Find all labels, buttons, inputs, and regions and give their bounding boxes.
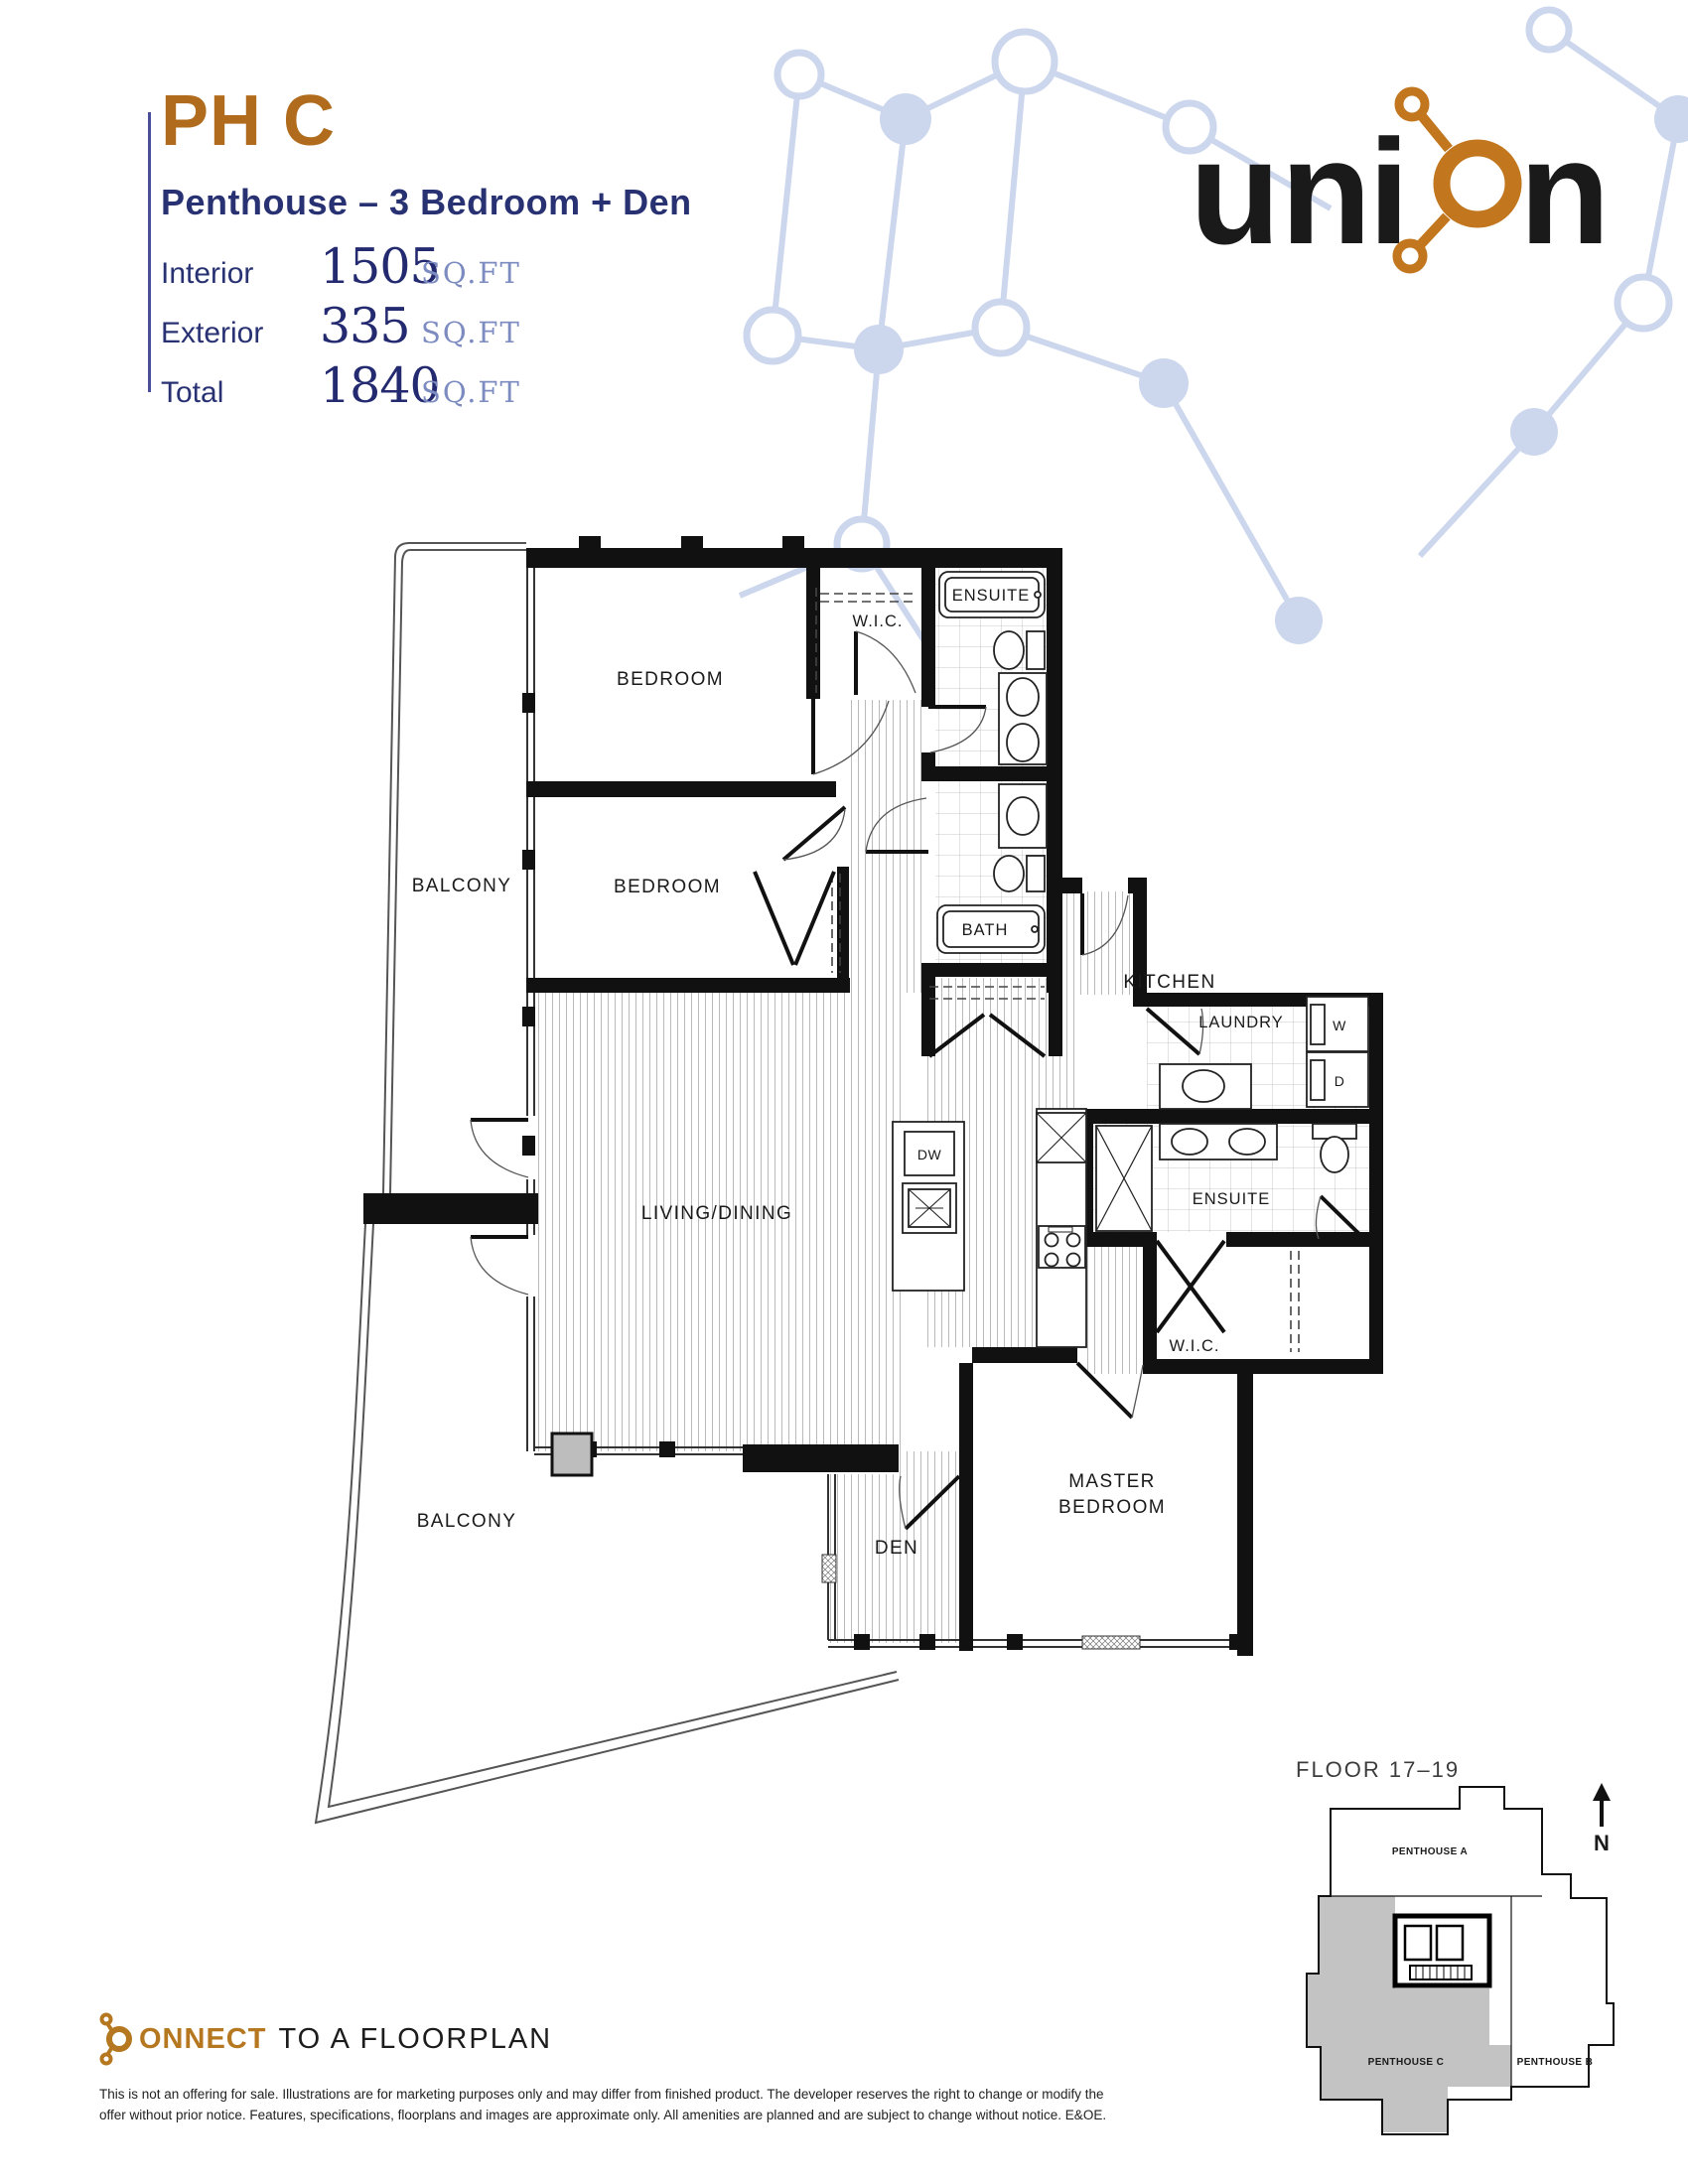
window-sill: [822, 1555, 836, 1582]
floorplan: BEDROOM BEDROOM W.I.C. ENSUITE BATH BALC…: [298, 526, 1390, 1846]
toilet: [1027, 631, 1045, 669]
room-label-living-dining: LIVING/DINING: [641, 1203, 792, 1224]
area-label: Interior: [161, 257, 320, 291]
room-label-ensuite-1: ENSUITE: [952, 587, 1031, 605]
room-label-bedroom-2: BEDROOM: [614, 877, 721, 897]
connect-molecule-icon: [99, 2011, 135, 2067]
toilet: [1027, 856, 1045, 891]
logo-text-un: un: [1190, 108, 1371, 275]
connect-logo-row: ONNECT TO A FLOORPLAN: [99, 2011, 552, 2067]
union-logo: un i n: [1172, 84, 1609, 283]
room-label-laundry: LAUNDRY: [1198, 1014, 1284, 1031]
area-row-total: Total 1840 SQ.FT: [161, 357, 521, 415]
room-label-balcony-2: BALCONY: [417, 1511, 517, 1532]
room-label-kitchen: KITCHEN: [1123, 972, 1215, 993]
logo-text-n: n: [1519, 108, 1609, 275]
keyplan-label-penthouse-b: PENTHOUSE B: [1517, 2057, 1594, 2068]
area-label: Total: [161, 376, 320, 410]
area-unit: SQ.FT: [421, 256, 521, 290]
column: [552, 1433, 592, 1475]
north-arrow-icon: N: [1593, 1783, 1611, 1855]
label-dryer: D: [1335, 1073, 1345, 1089]
room-label-den: DEN: [875, 1538, 918, 1559]
area-value: 335: [320, 298, 421, 354]
north-label: N: [1594, 1831, 1610, 1855]
disclaimer: This is not an offering for sale. Illust…: [99, 2085, 1569, 2126]
room-label-bedroom-1: BEDROOM: [617, 669, 724, 690]
label-washer: W: [1333, 1018, 1346, 1033]
room-label-wic-2: W.I.C.: [1170, 1337, 1220, 1355]
area-label: Exterior: [161, 317, 320, 350]
connect-tagline: TO A FLOORPLAN: [278, 2023, 552, 2056]
room-label-bath: BATH: [962, 921, 1009, 939]
room-label-master-1: MASTER: [1068, 1471, 1156, 1492]
disclaimer-line-2: offer without prior notice. Features, sp…: [99, 2106, 1569, 2126]
header-rule: [148, 112, 151, 392]
area-value: 1505: [320, 238, 421, 295]
connect-logo-text: ONNECT: [139, 2023, 266, 2056]
area-value: 1840: [320, 357, 421, 414]
area-row-interior: Interior 1505 SQ.FT: [161, 238, 521, 296]
label-dishwasher: DW: [917, 1147, 942, 1162]
room-label-balcony-1: BALCONY: [412, 876, 512, 896]
window-sill: [1082, 1636, 1140, 1649]
disclaimer-line-1: This is not an offering for sale. Illust…: [99, 2085, 1569, 2106]
room-label-ensuite-2: ENSUITE: [1193, 1190, 1271, 1208]
keyplan-label-penthouse-a: PENTHOUSE A: [1392, 1846, 1468, 1857]
keyplan-core: [1395, 1916, 1489, 1985]
keyplan-title: FLOOR 17–19: [1296, 1757, 1460, 1782]
plan-description: Penthouse – 3 Bedroom + Den: [161, 185, 692, 220]
area-unit: SQ.FT: [421, 375, 521, 409]
logo-molecule-icon: [1397, 91, 1513, 269]
keyplan-label-penthouse-c: PENTHOUSE C: [1368, 2057, 1445, 2068]
area-unit: SQ.FT: [421, 316, 521, 349]
area-row-exterior: Exterior 335 SQ.FT: [161, 298, 521, 355]
page-title: PH C: [161, 85, 336, 157]
room-label-wic-1: W.I.C.: [853, 613, 904, 630]
room-label-master-2: BEDROOM: [1058, 1497, 1166, 1518]
